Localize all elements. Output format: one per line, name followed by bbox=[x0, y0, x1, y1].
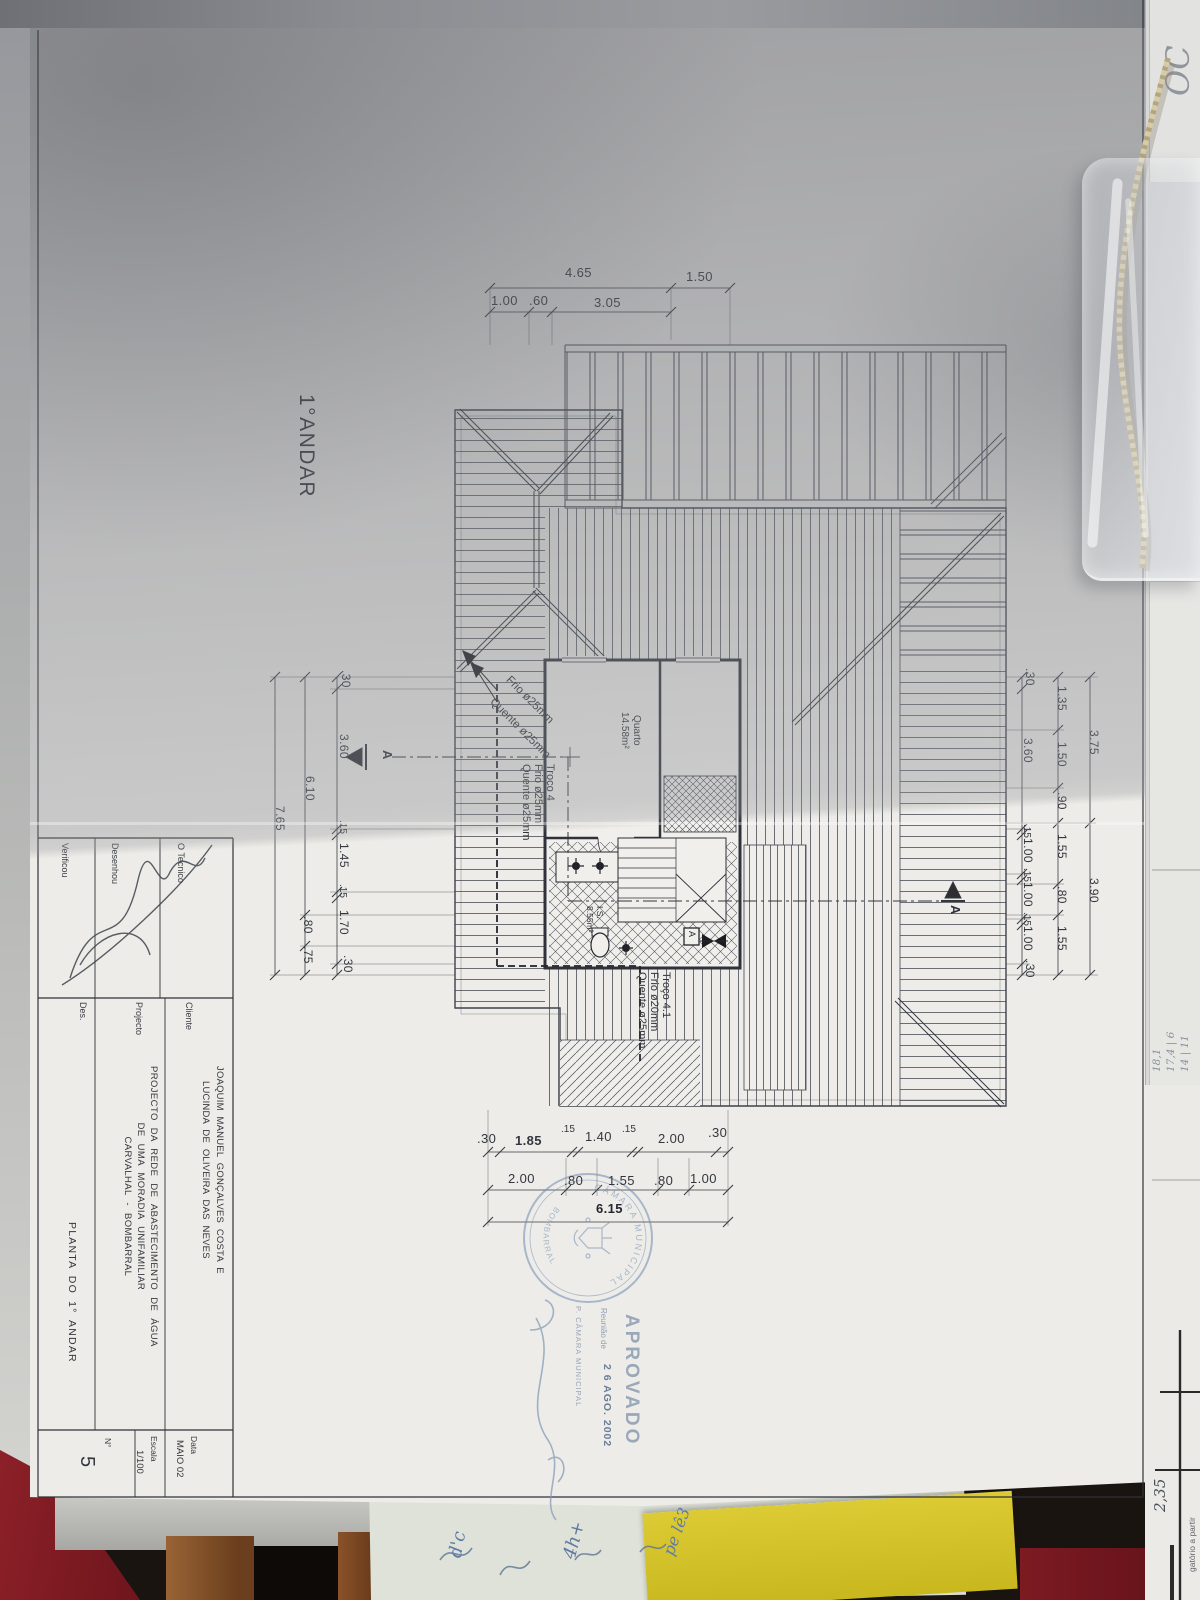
dim-label: 6.10 bbox=[302, 776, 316, 801]
dim-label: 3.05 bbox=[594, 296, 621, 311]
room-block bbox=[545, 656, 740, 968]
titleblock-drawing-title: PLANTA DO 1° ANDAR bbox=[66, 1222, 78, 1363]
handwritten-numbers: 18,1 17,4 | 6 14 | 11 bbox=[1150, 1032, 1192, 1072]
titleblock-data-value: MAIO 02 bbox=[173, 1440, 184, 1478]
dim-label: .30 bbox=[477, 1132, 496, 1147]
stamp-meeting-line: Reunião de bbox=[599, 1308, 608, 1349]
valve-box-label: A bbox=[687, 931, 697, 937]
dim-label: .15 bbox=[337, 820, 349, 834]
municipal-seal: CÂMARA MUNICIPAL BOMBARRAL bbox=[524, 1174, 652, 1302]
floor-title: 1°ANDAR bbox=[294, 394, 318, 498]
dim-label: 1.55 bbox=[1054, 834, 1068, 859]
dim-label: .80 bbox=[654, 1174, 673, 1189]
dim-label: .30 bbox=[708, 1126, 727, 1141]
plastic-object bbox=[1082, 158, 1200, 581]
pipe-label-troco4: Troço 4 Frio ø25mm Quente ø25mm bbox=[520, 764, 556, 840]
dim-label: .80 bbox=[300, 916, 314, 934]
dim-label: 3.60 bbox=[1020, 738, 1034, 763]
corner-scribble: OC bbox=[1160, 45, 1197, 96]
dim-label: 1.50 bbox=[686, 270, 713, 285]
dim-label: .15 bbox=[561, 1124, 575, 1136]
dim-label: .30 bbox=[1022, 668, 1036, 686]
svg-text:CÂMARA MUNICIPAL: CÂMARA MUNICIPAL bbox=[594, 1182, 644, 1288]
stamp-issuer-line: P. CÂMARA MUNICIPAL bbox=[573, 1306, 582, 1407]
aprovado-stamp-text: APROVADO bbox=[620, 1314, 642, 1446]
dim-label: 7.65 bbox=[272, 806, 286, 831]
titleblock-escala-label: Escala bbox=[148, 1436, 158, 1462]
dim-label: 1.55 bbox=[1054, 926, 1068, 951]
titleblock-escala-value: 1/100 bbox=[133, 1450, 144, 1474]
scrap-squiggles bbox=[440, 1544, 666, 1575]
dim-label: .30 bbox=[338, 670, 352, 688]
dim-label: 4.65 bbox=[565, 266, 592, 281]
dim-label: .80 bbox=[1054, 886, 1068, 904]
dim-label: 2.00 bbox=[508, 1172, 535, 1187]
dim-label: 1.00 bbox=[1020, 926, 1034, 951]
dim-label: 1.70 bbox=[336, 910, 350, 935]
dim-label: .15 bbox=[1021, 912, 1033, 926]
titleblock-cliente-label: Cliente bbox=[184, 1002, 194, 1030]
dim-label: .90 bbox=[1054, 792, 1068, 810]
technician-signature bbox=[62, 845, 212, 985]
dim-label: .30 bbox=[1022, 960, 1036, 978]
titleblock-numero-label: N° bbox=[102, 1438, 112, 1448]
dim-label: .15 bbox=[337, 884, 349, 898]
titleblock-cliente-name: JOAQUIM MANUEL GONÇALVES COSTA E LUCINDA… bbox=[198, 1066, 226, 1274]
dim-label: 1.55 bbox=[608, 1174, 635, 1189]
seal-emblem-icon bbox=[574, 1218, 612, 1258]
dim-label: .15 bbox=[1021, 868, 1033, 882]
dim-label: .60 bbox=[529, 294, 548, 309]
dim-label: 1.00 bbox=[1020, 838, 1034, 863]
washbasin-counter bbox=[556, 852, 618, 882]
titleblock-data-label: Data bbox=[188, 1436, 198, 1454]
room-label-quarto: Quarto 14.58m² bbox=[618, 712, 642, 749]
titleblock-tecnico-label: O Tecnico bbox=[176, 843, 186, 883]
room-label-is: I.S. 8.55m² bbox=[585, 906, 604, 932]
dim-label: .80 bbox=[564, 1174, 583, 1189]
dim-label: 1.50 bbox=[1054, 742, 1068, 767]
edge-printed-text: gatório a partir bbox=[1188, 1517, 1198, 1572]
svg-text:BOMBARRAL: BOMBARRAL bbox=[541, 1205, 561, 1266]
stamp-date: 2 6 AGO. 2002 bbox=[601, 1364, 613, 1447]
titleblock-numero-value: 5 bbox=[75, 1456, 98, 1467]
seal-top-text: CÂMARA MUNICIPAL bbox=[594, 1182, 644, 1288]
plan-linework: CÂMARA MUNICIPAL BOMBARRAL bbox=[0, 0, 1200, 1600]
titleblock-desenhou-label: Desenhou bbox=[110, 843, 120, 884]
titleblock-projecto-text: PROJECTO DA REDE DE ABASTECIMENTO DE ÁGU… bbox=[121, 1066, 160, 1347]
dim-label: .15 bbox=[1021, 824, 1033, 838]
section-label-right: A bbox=[947, 905, 962, 914]
dim-label: 1.00 bbox=[690, 1172, 717, 1187]
titleblock-des-label: Des. bbox=[78, 1002, 88, 1021]
pipe-label-troco41: Troço 4.1 Frio ø20mm Quente ø25mm bbox=[636, 972, 672, 1048]
approval-signature bbox=[530, 1300, 564, 1520]
dim-label: .75 bbox=[300, 946, 314, 964]
dim-label: 1.00 bbox=[1020, 882, 1034, 907]
dim-label: 3.90 bbox=[1086, 878, 1100, 903]
dim-label: 2.00 bbox=[658, 1132, 685, 1147]
dim-label: 1.85 bbox=[515, 1134, 542, 1149]
dim-label: 1.45 bbox=[336, 843, 350, 868]
dim-label: 1.35 bbox=[1054, 686, 1068, 711]
dim-label: 3.60 bbox=[336, 734, 350, 759]
plastic-highlight bbox=[1087, 178, 1123, 548]
dim-label: 1.00 bbox=[491, 294, 518, 309]
dim-label: .30 bbox=[340, 955, 354, 973]
photographed-floor-plan-scene: CÂMARA MUNICIPAL BOMBARRAL 1°ANDAR bbox=[0, 0, 1200, 1600]
dim-label: .15 bbox=[622, 1124, 636, 1136]
dim-label: 3.75 bbox=[1086, 730, 1100, 755]
titleblock-projecto-label: Projecto bbox=[134, 1002, 144, 1035]
section-label-left: A bbox=[379, 750, 394, 759]
dim-label: 6.15 bbox=[596, 1202, 623, 1217]
seal-bottom-text: BOMBARRAL bbox=[541, 1205, 561, 1266]
titleblock-verificou-label: Verificou bbox=[60, 843, 70, 878]
dim-label: 1.40 bbox=[585, 1130, 612, 1145]
plastic-highlight bbox=[1125, 198, 1149, 538]
grid-paper-number: 2,35 bbox=[1152, 1479, 1169, 1512]
